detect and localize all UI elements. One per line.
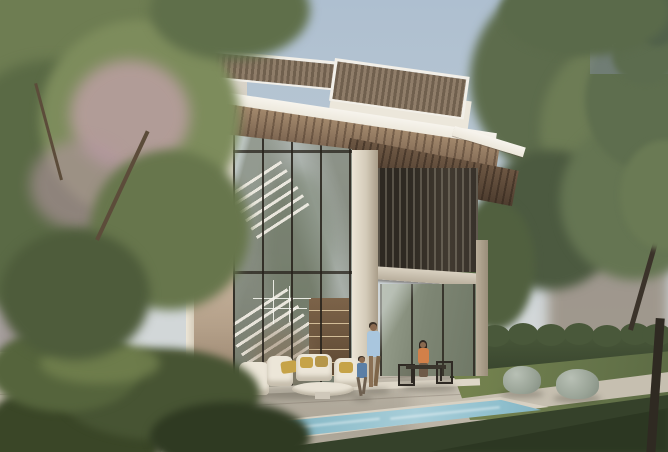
villa-render-image: NAWY [0, 0, 668, 452]
hedge-top [592, 325, 622, 347]
man-head [370, 324, 377, 331]
man-leg [369, 356, 373, 387]
balcony-slat-screen [378, 168, 478, 272]
pouf-chair [503, 366, 541, 394]
right-side-wall [476, 240, 488, 376]
hedge-top [508, 323, 538, 345]
man-blue-shirt [367, 331, 380, 357]
dining-table-leg [411, 369, 413, 383]
mustard-pillow [300, 357, 313, 368]
dining-table-leg [440, 368, 442, 381]
man-shadow [362, 388, 390, 394]
child-blue-top [357, 363, 367, 378]
pouf-chair [556, 369, 599, 399]
left-tree-canopy [0, 230, 150, 360]
window-mullions [233, 130, 352, 392]
child-shadow [352, 396, 372, 401]
mustard-pillow [339, 362, 353, 373]
glass-curtain-wall [233, 130, 352, 392]
hedge-top [564, 323, 594, 345]
coffee-table-base [315, 392, 330, 399]
hedge-top [536, 324, 566, 346]
mustard-pillow [315, 356, 328, 367]
woman-orange-top [418, 348, 429, 364]
